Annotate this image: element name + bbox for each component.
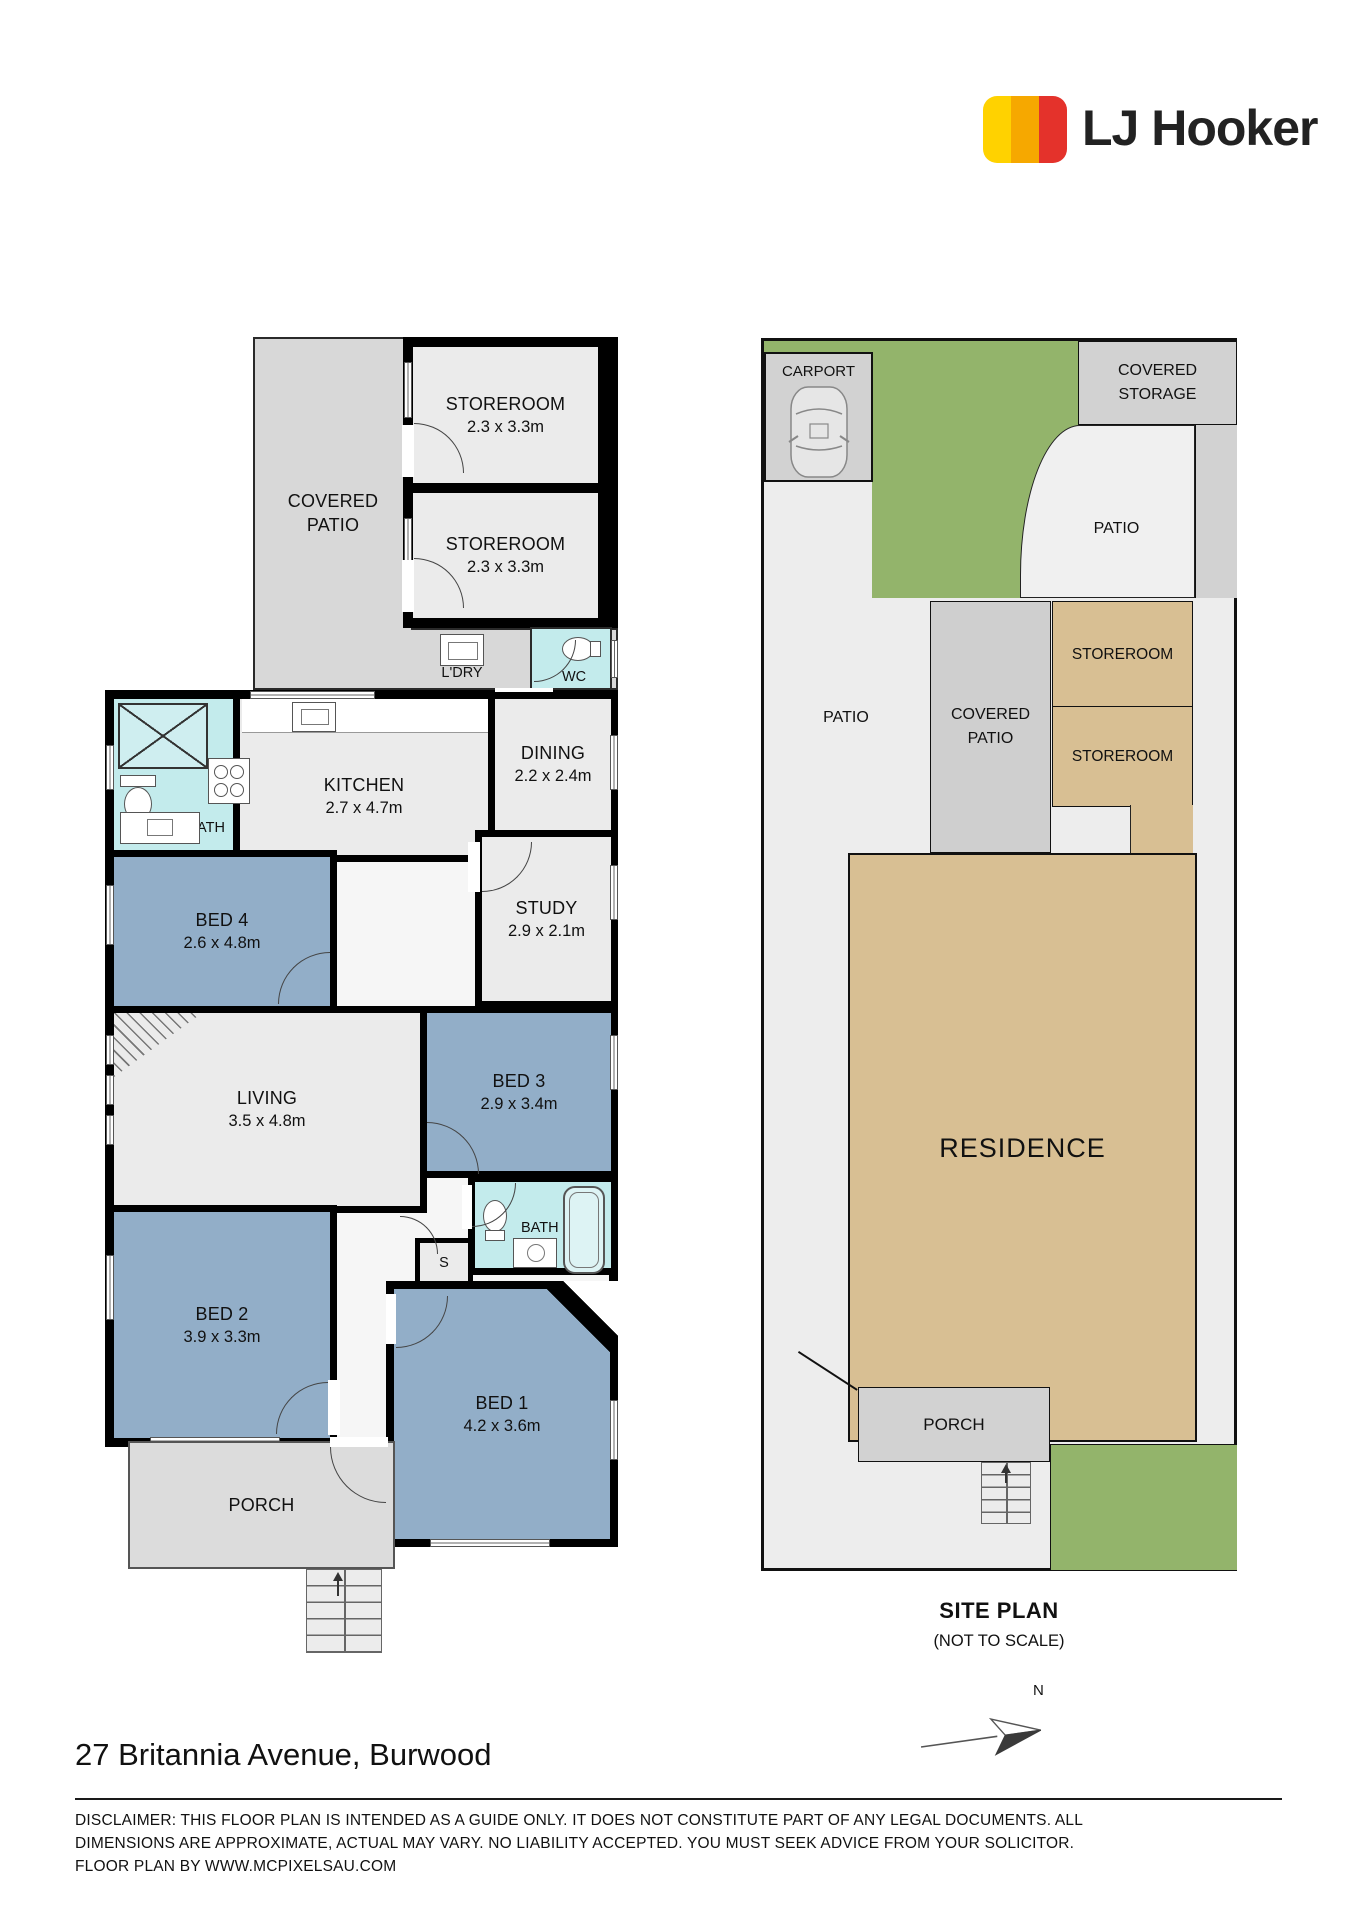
steps-arrow-stem [337,1580,339,1596]
storeroom-site-1-area: STOREROOM [1052,601,1193,708]
porch-site-label: PORCH [923,1413,984,1437]
carport-label: CARPORT [782,360,855,384]
bed1-window-right [610,1400,618,1460]
living-window-1 [106,1035,114,1065]
wc-window [611,640,618,678]
bed2-door-gap [328,1380,340,1435]
dining-dims: 2.2 x 2.4m [514,767,591,786]
study-dims: 2.9 x 2.1m [508,922,585,941]
bathtub-icon [563,1186,605,1274]
shower-icon [118,703,208,769]
living-window-2 [106,1075,114,1105]
closet-s-label: S [439,1255,449,1271]
front-door-gap [330,1437,388,1447]
compass-north-label: N [1033,1682,1044,1699]
patio-left-label: PATIO [800,706,892,730]
bed4-window [106,885,114,945]
patio-upper-label: PATIO [1076,482,1140,541]
porch-site-area: PORCH [858,1387,1050,1462]
bed1-dims: 4.2 x 3.6m [463,1417,540,1436]
bed3-label: BED 3 [492,1071,545,1092]
porch-label: PORCH [228,1495,294,1516]
storeroom-site-1-label: STOREROOM [1072,643,1173,667]
storeroom-1-label: STOREROOM [446,394,565,415]
covered-patio-label-2: PATIO [307,515,359,536]
lj-hooker-logo-text: LJ Hooker [1082,99,1318,157]
floor-plan-page: LJ Hooker COVERED PATIO STOREROOM 2.3 x … [0,0,1357,1920]
covered-storage-label-1: COVERED [1118,359,1197,383]
storeroom-1-window [404,362,412,418]
bed1-label: BED 1 [475,1393,528,1414]
covered-patio-room: COVERED PATIO [253,337,413,690]
site-plan-caption-title: SITE PLAN [761,1598,1237,1624]
covered-patio-site-area: COVERED PATIO [930,601,1051,853]
stove-icon [208,758,250,804]
storeroom-2-dims: 2.3 x 3.3m [467,558,544,577]
disclaimer-line-3: FLOOR PLAN BY WWW.MCPIXELSAU.COM [75,1858,1285,1876]
living-dims: 3.5 x 4.8m [228,1112,305,1131]
wc-label: WC [562,669,586,685]
footer-divider [75,1798,1282,1800]
vanity-top-icon [120,812,200,844]
residence-area: RESIDENCE [848,853,1197,1442]
property-address: 27 Britannia Avenue, Burwood [75,1737,492,1773]
disclaimer-line-2: DIMENSIONS ARE APPROXIMATE, ACTUAL MAY V… [75,1835,1285,1853]
bath-top-window [106,745,114,790]
residence-connector [1130,805,1193,855]
storeroom-1-dims: 2.3 x 3.3m [467,418,544,437]
bed4-dims: 2.6 x 4.8m [183,934,260,953]
porch-steps [306,1569,382,1653]
bed1-door-gap [386,1294,396,1344]
storeroom-2-door-gap [402,560,414,612]
study-label: STUDY [515,898,577,919]
covered-patio-site-label-2: PATIO [968,727,1014,751]
site-plan-caption-subtitle: (NOT TO SCALE) [761,1632,1237,1651]
carport-area: CARPORT [764,352,873,482]
covered-storage-side-strip [1195,425,1237,598]
bed1-corner-cut [546,1281,618,1353]
study-door-gap [468,842,480,892]
covered-storage-area: COVERED STORAGE [1078,341,1237,425]
bed4-label: BED 4 [195,910,248,931]
covered-patio-site-label-1: COVERED [951,703,1030,727]
lj-hooker-logo-icon [983,96,1067,163]
dining-window [610,735,618,790]
bed3-window [610,1035,618,1090]
study-window [610,865,618,920]
toilet-top-cistern-icon [120,775,156,787]
site-steps-arrow-stem [1005,1471,1007,1483]
storeroom-site-2-area: STOREROOM [1052,706,1193,807]
storeroom-1-door-gap [402,425,414,477]
kitchen-counter [242,699,488,733]
dining-room: DINING 2.2 x 2.4m [488,692,618,837]
vanity-bottom-icon [513,1238,557,1268]
laundry-sink-icon [440,634,484,666]
bed2-dims: 3.9 x 3.3m [183,1328,260,1347]
dining-label: DINING [521,743,585,764]
kitchen-sink-icon [292,702,336,732]
lawn-bottom [1050,1444,1237,1570]
residence-label: RESIDENCE [939,1136,1106,1160]
covered-storage-label-2: STORAGE [1119,383,1197,407]
bed2-label: BED 2 [195,1304,248,1325]
covered-patio-label-1: COVERED [288,491,378,512]
bed2-window-left [106,1255,114,1320]
car-icon [786,384,852,480]
kitchen-window [250,691,375,699]
bed3-dims: 2.9 x 3.4m [480,1095,557,1114]
disclaimer-line-1: DISCLAIMER: THIS FLOOR PLAN IS INTENDED … [75,1812,1285,1830]
kitchen-label: KITCHEN [324,775,404,796]
bath-bottom-label: BATH [521,1220,559,1236]
compass: N [915,1680,1055,1785]
living-label: LIVING [237,1088,297,1109]
bath-bottom-door-gap [462,1185,472,1229]
laundry-label: L'DRY [420,665,504,681]
bed1-window-bottom [430,1539,550,1547]
living-window-3 [106,1115,114,1145]
storeroom-site-2-label: STOREROOM [1072,745,1173,769]
wc-cistern-icon [590,641,601,657]
storeroom-2-label: STOREROOM [446,534,565,555]
toilet-bottom-cistern-icon [485,1230,505,1241]
kitchen-dims: 2.7 x 4.7m [325,799,402,818]
patio-upper-area: PATIO [1020,425,1195,598]
